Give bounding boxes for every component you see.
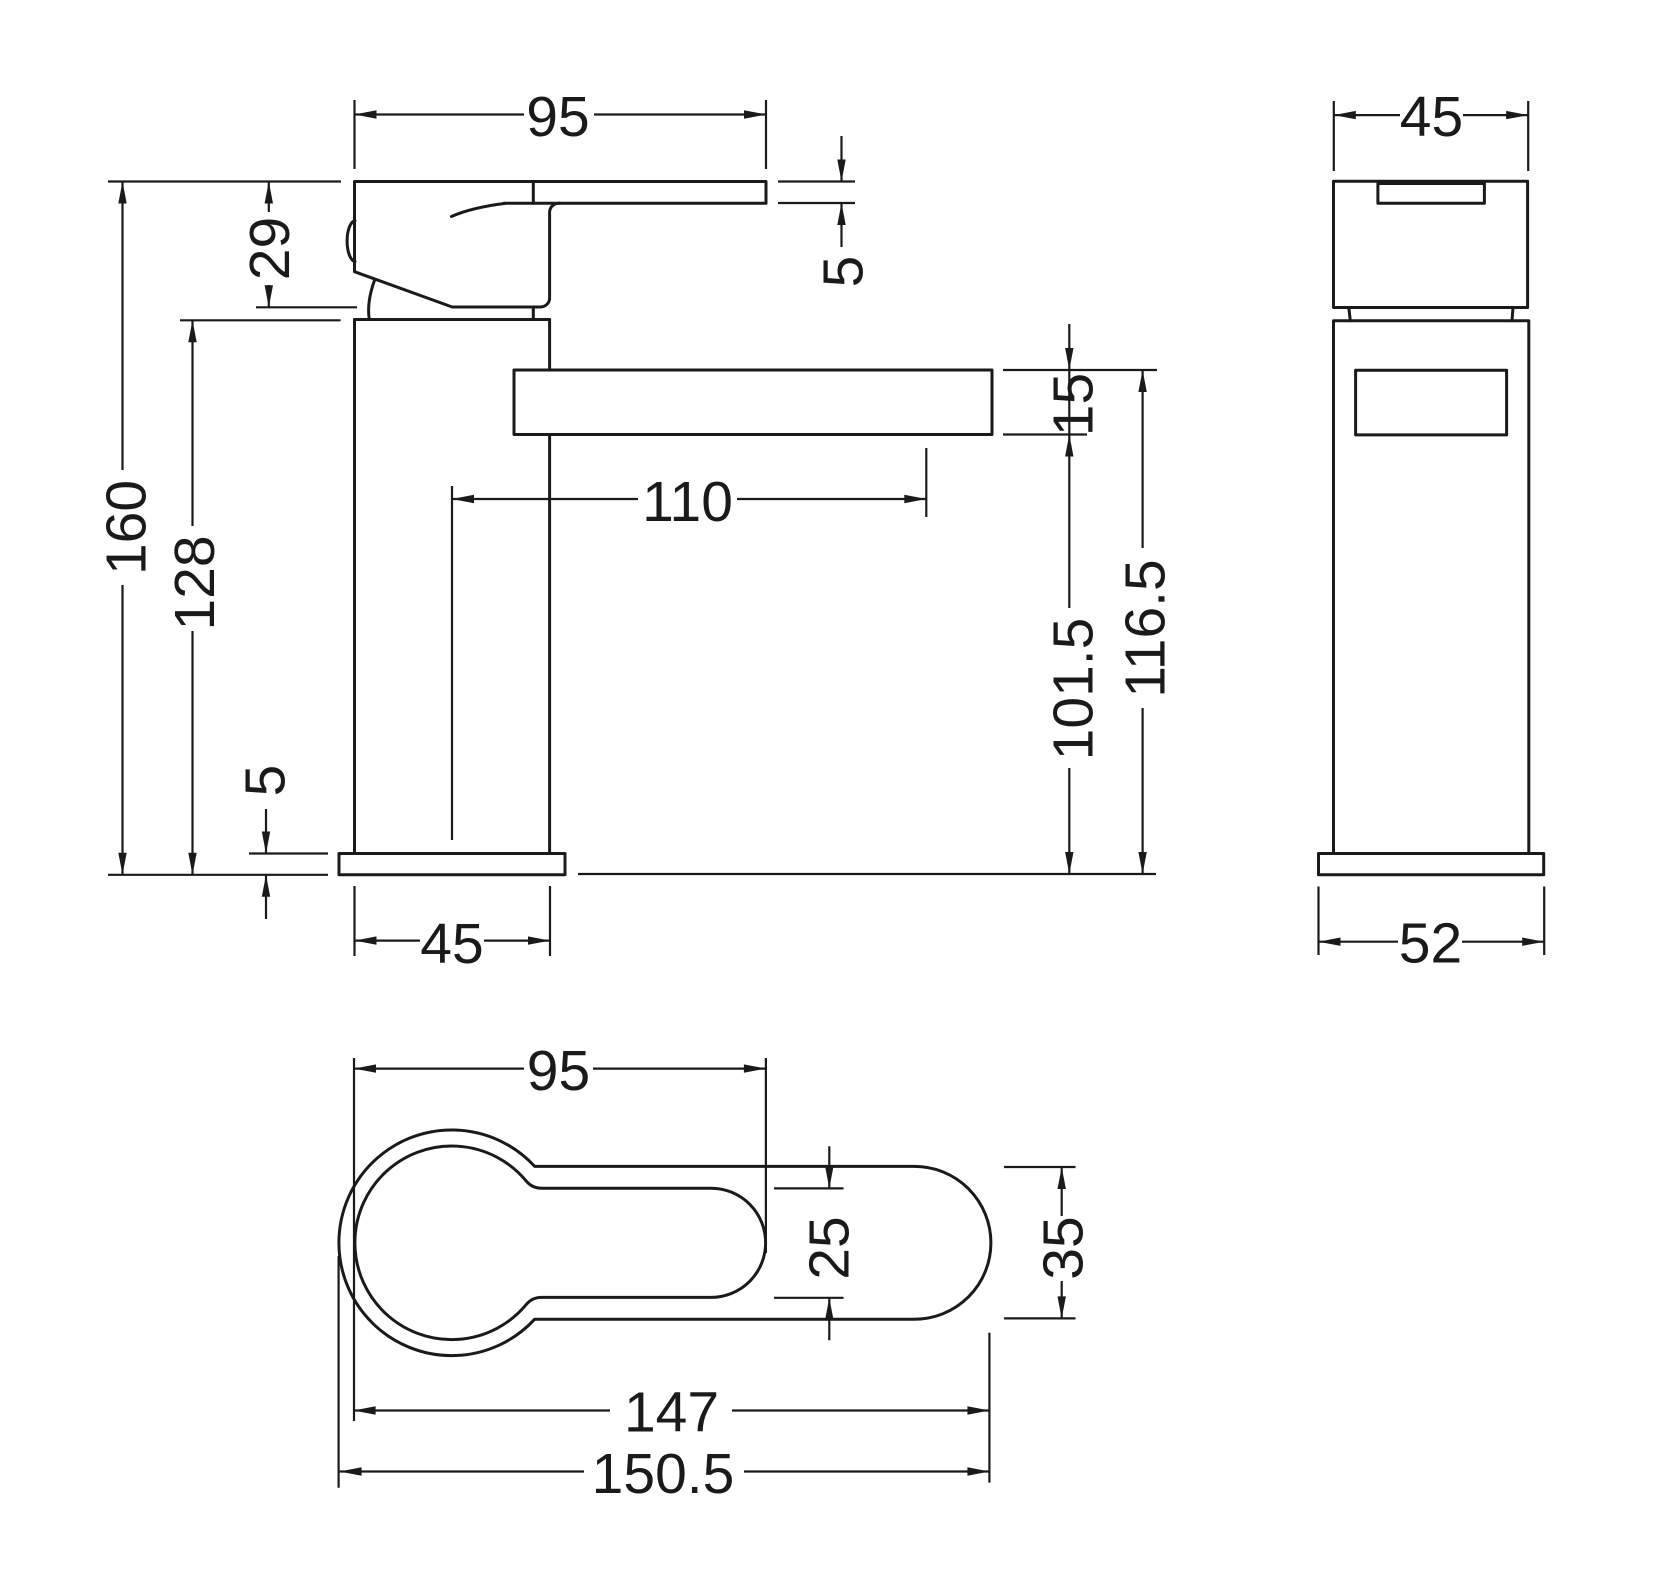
svg-text:95: 95 (527, 1039, 590, 1103)
svg-text:5: 5 (811, 256, 875, 288)
svg-text:52: 52 (1399, 912, 1462, 976)
svg-text:150.5: 150.5 (592, 1442, 735, 1506)
svg-text:101.5: 101.5 (1041, 618, 1105, 761)
svg-text:45: 45 (420, 912, 483, 976)
svg-text:128: 128 (163, 535, 227, 630)
svg-text:25: 25 (797, 1216, 861, 1279)
svg-text:35: 35 (1031, 1216, 1095, 1279)
svg-text:5: 5 (233, 765, 297, 797)
svg-text:29: 29 (238, 217, 302, 280)
svg-text:160: 160 (94, 480, 158, 575)
svg-text:116.5: 116.5 (1113, 559, 1177, 697)
svg-text:110: 110 (642, 470, 733, 534)
svg-text:45: 45 (1400, 85, 1463, 149)
svg-text:15: 15 (1041, 373, 1105, 436)
svg-text:147: 147 (624, 1381, 719, 1445)
svg-text:95: 95 (526, 85, 589, 149)
